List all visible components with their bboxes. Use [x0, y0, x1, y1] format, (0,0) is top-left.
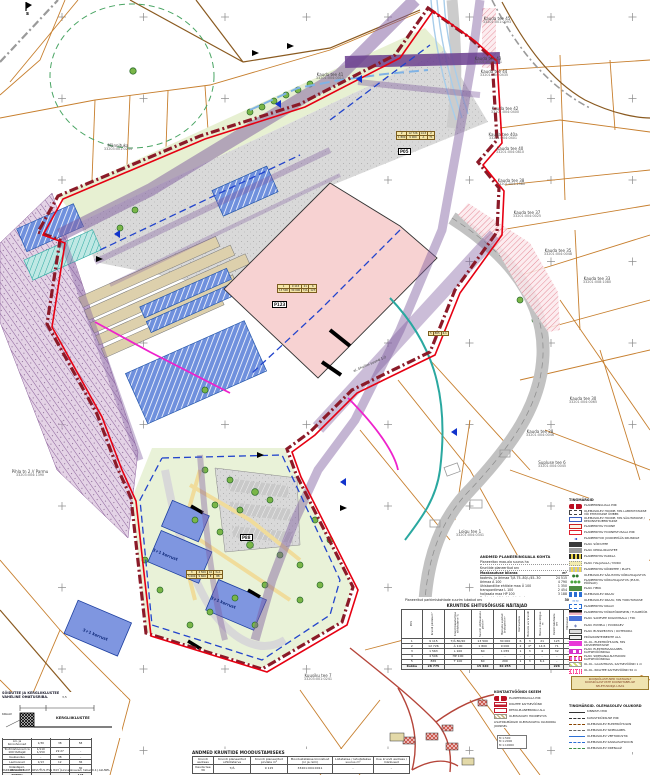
legend-item-label: OLEMASOLEV VEETORUSTIK: [587, 735, 628, 738]
column-header: Parkimiskohtade arv: [550, 610, 564, 639]
column-header-text: Krundi pindala m²: [432, 612, 435, 635]
column-header: Liidetakse / lahutatakse suurus m²: [333, 757, 373, 765]
building-right-mini-table: 19 11521613 50030 000T/Ä123: [277, 284, 317, 293]
legend-item: PLANEERITAV HOONE: [569, 524, 649, 529]
logo-icon: [569, 504, 582, 509]
newditch-icon: [569, 604, 582, 609]
data-table: POSKrundi pindala m²Krundi kasutamise si…: [401, 609, 573, 670]
legend-item-label: RIIGITEE KAITSEVÖÖND: [509, 703, 542, 706]
gaas-icon: [569, 662, 582, 667]
table-cell: Kauda tee 39: [193, 765, 214, 773]
legend-item-label: PLAN. HALJASALA / MURU: [584, 562, 621, 565]
column-header: Krundi planeeritud sihtotstarve: [213, 757, 251, 765]
legend-item-label: PLANEERITAV PARKLA: [584, 555, 615, 558]
legend-existing-item: OLEMASOLEV SIDEKAABEL: [569, 728, 649, 733]
plot-formation-panel: ANDMED KRUNTIDE MOODUSTAMISEKS Krundi aa…: [192, 749, 410, 774]
parcel-label: Kauda tee 3833201:004:1580: [497, 179, 525, 187]
north-arrow-icon: [26, 2, 32, 11]
detail-plan-drawing: Kauda tee 4533201:001:0093Kauda tee 4333…: [0, 0, 650, 775]
legend-item-label: PLANEERITAV MÜRATÕKKESEIN / TUGIMÜÜR: [584, 611, 647, 614]
tanhatch-icon: [494, 714, 507, 719]
mini-table-cell: 4 506: [197, 571, 207, 575]
column-header: Suurim ehitisealune pind m²: [472, 610, 494, 639]
section-left-label: KRAAV: [2, 712, 12, 716]
legend-item-label: OLEMASOLEV SÄILITATAV KÕRGHALJASTUS: [584, 574, 646, 577]
column-header-text: Korruselisus: [519, 616, 522, 632]
parcel-code: 33203:001:0244: [104, 148, 132, 152]
table-cell: 38: [50, 739, 70, 747]
legend-item-label: OLEMASOLEV KRAAV: [584, 593, 614, 596]
ditch-icon: [569, 592, 582, 597]
mini-table-cell: 71: [428, 136, 434, 140]
parking-calc-note: PARKIMISKOHTADE ARVUTUS EVS 843 (Linnatä…: [2, 768, 152, 772]
table-cell: 58: [70, 739, 92, 747]
line-sample-icon: [569, 724, 585, 725]
table-total-cell: 226: [550, 664, 564, 669]
mini-table-row: 58656,1: [429, 332, 449, 336]
legend-existing-item: KATASTRIÜKSUSE PIIR: [569, 716, 649, 721]
table-total-row: Kokku28 77515 42040 255226: [402, 664, 573, 669]
legend-item: PLAN. HEKK: [569, 586, 649, 591]
logo-icon: [494, 696, 507, 701]
parcel-code: 33201:004:1580: [497, 183, 525, 187]
glyph-icon: ◄: [569, 536, 582, 541]
legend-item-label: KATASTRIÜKSUSE PIIR: [587, 717, 619, 720]
legend-item: OL.OL. ELEKTRIÕHULIIN, MIS LIKVIDEERITAK…: [569, 641, 649, 647]
table-header-row: POSKrundi pindala m²Krundi kasutamise si…: [402, 610, 573, 639]
table-cell: 29 27: [50, 747, 70, 755]
mini-table-row: 5 6009 600E88: [187, 575, 223, 579]
legend-item-label: OLEMASOLEV HOONE, MIS LAMMUTATAKSE VÕI E…: [584, 510, 649, 516]
summary-row: Planeeritav maa-ala suurus ha3,2: [480, 560, 576, 565]
approvals-stamp: KOOSKÕLASTUSED VASTAVALTKOOSKÕLASTUSTE K…: [571, 676, 649, 690]
land-use-area: 3 188: [552, 592, 567, 596]
mini-table-cell: 9 000: [407, 136, 419, 140]
building-right-mini-table: 58656,1: [428, 331, 449, 336]
line-sample-icon: [569, 742, 585, 743]
section-label: KERGLIIKLUSTEE: [56, 716, 90, 720]
legend-item-label: PLAN. PUMPLA / PUURKAEV: [584, 624, 624, 627]
el-dash-icon: [569, 656, 582, 661]
table-cell: Äri- ja büroohooned: [3, 739, 32, 747]
column-header-text: Uue krundi aadress / märkused: [376, 757, 407, 764]
column-header-text: Moodustatakse kinnistust (nr ja nimi): [291, 757, 329, 764]
parcel-code: 33201:001:0093: [483, 21, 511, 25]
mini-legend-title: KONTAKTVÖÖNDI SKEEM: [494, 690, 568, 694]
legend-item: PLANEERINGUALA PIIR: [494, 696, 568, 701]
column-header: Krundi kasutamise sihtotstarve %: [445, 610, 472, 639]
legend-item: ◄PLANEERITUD JUURDEPÄÄS KRUNDILE: [569, 536, 649, 541]
table-total-cell: [535, 664, 550, 669]
parcel-code: 33203:001:0241: [304, 678, 332, 682]
parcel-code: 33201:004:0810: [496, 151, 524, 155]
column-header-text: Liidetakse / lahutatakse suurus m²: [335, 757, 371, 764]
rights-table-title: KRUNTIDE EHITUSÕIGUSE NÄITAJAD: [401, 603, 573, 608]
summary-title: ANDMED PLANEERINGUALA KOHTA: [480, 555, 576, 559]
mini-table-cell: 6,1: [441, 332, 448, 336]
legend-item-label: OLEMASOLEV KRAAV, MIS TORUTATAKSE: [584, 599, 643, 602]
table-header-row: Krundi aadressKrundi planeeritud sihtots…: [193, 757, 410, 765]
legend-item-label: OLEMASOLEV KANALISATSIOON: [587, 741, 633, 744]
summary-row-label: Kruntide planeeritud arv: [480, 566, 519, 570]
column-header-text: Hoonete arv krundil: [528, 611, 531, 637]
line-sample-icon: [569, 748, 585, 749]
line-sample-icon: [569, 736, 585, 737]
planning-area-summary: ANDMED PLANEERINGUALA KOHTA Planeeritav …: [480, 555, 576, 602]
mini-table-cell: Ä: [419, 136, 428, 140]
legend-item-label: DETAILPLANEERINGU ALA: [509, 709, 545, 712]
parcel-label: Kauda tee 40a33201:004:0401: [488, 133, 517, 141]
parcel-label: Kauda tee 3733201:004:0025: [513, 211, 541, 219]
legend-item-label: PLAN. BUSSIPEATUS / OOTEKODA: [584, 630, 632, 633]
table-row: Äri- ja büroohooned1/303858: [3, 739, 92, 747]
parcel-code: 33201:004:0025: [513, 215, 541, 219]
parcel-label: Pihla tn 2 // Parmu33203:004:1390: [12, 470, 49, 478]
column-header: Korruselisus: [516, 610, 525, 639]
legend-item-label: PLAN. ELEKTRIMAAKAABEL KAITSEVÖÖNDIGA: [584, 648, 649, 654]
bus-icon: [569, 629, 582, 634]
parcel-label: Kauda tee 4333201:001:0071: [474, 57, 502, 65]
legend-item: PLANEERITAV PARKLA: [569, 554, 649, 559]
section-dim-2: 3,5: [62, 695, 67, 699]
legend-item: OL.OL. RIIGITEE KAITSEVÖÖND 50 m: [569, 669, 649, 674]
legend-item-label: KINNISTU PIIR: [587, 710, 607, 713]
legend-item: OLEMASOLEV HOONESTUS: [494, 714, 568, 719]
mini-table-cell: 865: [433, 332, 441, 336]
mini-table-row: 34 506103+1: [187, 571, 223, 575]
table-total-cell: 15 420: [472, 664, 494, 669]
parcel-label: Kauda tee 3333201:008:1080: [583, 277, 611, 285]
column-header-text: Hoone max kõrgus m: [540, 611, 545, 637]
table-total-cell: Kokku: [402, 664, 423, 669]
asphalt-icon: [569, 542, 582, 547]
parcel-code: 33201:008:1080: [583, 281, 611, 285]
legend-item-label: PLAN. HEKK: [584, 587, 601, 590]
legend-item: ◈PLAN. PUMPLA / PUURKAEV: [569, 623, 649, 628]
bld-new-icon: [569, 524, 582, 529]
legend-item: PRÜGIKONTEINERITE ALA: [569, 635, 649, 640]
legend-item-label: PLANEERITAV KRAAV: [584, 605, 614, 608]
redbox-icon: [494, 708, 507, 713]
building-right-mini-table: 34 506103+15 6009 600E88: [186, 570, 223, 579]
legend-item: ●●●PLANEERITAV KÕRGHALJASTUS (PUUD, PÕÕS…: [569, 579, 649, 585]
legend-item: PLAN. SADEVEE KOGUMISALA / TIIK: [569, 616, 649, 621]
column-header: Hoonete arv krundil: [525, 610, 535, 639]
rights-note: Planeeritud parkimiskohtade suurim lubat…: [401, 598, 573, 602]
legend-item: PLAN. BUSSIPEATUS / OOTEKODA: [569, 629, 649, 634]
legend-item: PLAN. ELEKTRIMAAKAABEL KAITSEVÖÖNDIGA: [569, 648, 649, 654]
parcel-label: Kauda tee 3533201:004:0048: [544, 249, 572, 257]
parcel-label: Kauda tee 4033201:004:0810: [496, 147, 524, 155]
column-header-text: POS: [411, 621, 414, 626]
mini-legend-note: LISATINGMÄRGID OLEMASOLEVA OLUKORRA JOON…: [494, 720, 568, 728]
legend-existing-item: OLEMASOLEV DRENAAŽ: [569, 746, 649, 751]
legend-item: PLAN. KERGLIIKLUSTEE: [569, 548, 649, 553]
parcel-code: 33201:004:0011: [316, 77, 344, 81]
legend-item-label: PLAN. SIDEKANALISATSIOON KAITSEVÖÖNDIGA: [584, 655, 649, 661]
legend-item-label: PLANEERINGUALA PIIR: [509, 697, 541, 700]
legend-item-label: PRÜGIKONTEINERITE ALA: [584, 636, 621, 639]
building-right-mini-table: 212 72614,521 8009 000Ä71: [396, 131, 435, 140]
column-header-text: Krundi kasutamise sihtotstarve %: [455, 611, 460, 637]
mini-table-cell: 123: [309, 289, 317, 293]
scale-row: M 1:10000: [499, 744, 525, 748]
legend-item: ≈≈OLEMASOLEV KRAAV, MIS TORUTATAKSE: [569, 598, 649, 603]
striped-icon: [569, 567, 582, 572]
column-header-text: Krundi planeeritud sihtotstarve: [218, 757, 246, 764]
side-icon: [569, 649, 582, 654]
parcel-code: 33201:004:0401: [488, 137, 517, 141]
legend-item-label: OL.OL. RIIGITEE KAITSEVÖÖND 50 m: [584, 669, 637, 672]
column-header: Moodustatakse kinnistust (nr ja nimi): [287, 757, 333, 765]
water-icon: [569, 616, 582, 621]
table-total-cell: [525, 664, 535, 669]
legend-item: DETAILPLANEERINGU ALA: [494, 708, 568, 713]
legend-item: PLAN. HALJASALA / MURU: [569, 561, 649, 566]
parcel-label: Kuusiku tee 733203:001:0241: [304, 674, 332, 682]
hoonestus-icon: [569, 530, 582, 535]
line-sample-icon: [569, 718, 585, 719]
legend-item-label: PLAN. SÕIDUTEE: [584, 543, 608, 546]
bld-old-icon: [569, 510, 582, 515]
legend-main: TINGMÄRGID PLANEERINGUALA PIIROLEMASOLEV…: [569, 498, 649, 675]
haljas-icon: [569, 561, 582, 566]
table-total-cell: 28 775: [422, 664, 444, 669]
legend-item: OLEMASOLEV HOONE, MIS LAMMUTATAKSE VÕI E…: [569, 510, 649, 516]
mini-table-cell: 12 726: [407, 132, 419, 136]
legend-item-label: PLANEERITAV KÕNNITEE / PLATS: [584, 568, 631, 571]
legend-item-label: OLEMASOLEV DRENAAŽ: [587, 747, 622, 750]
column-header-text: Hoonete suletud brutopind m²: [502, 611, 507, 637]
parcel-label: Loigu tee 133201:004:0341: [456, 530, 484, 538]
legend-item-label: OL.OL. ELEKTRIÕHULIIN, MIS LIKVIDEERITAK…: [584, 641, 649, 647]
legend-item-label: PLANEERITAV KÕRGHALJASTUS (PUUD, PÕÕSAD): [584, 579, 649, 585]
column-header: Krundi pindala m²: [422, 610, 444, 639]
parcel-label: Kauda tee 2833201:004:0046: [526, 430, 554, 438]
redstripe-icon: [494, 702, 507, 707]
legend-existing-situation: TINGMÄRGID. OLEMASOLEV OLUKORD KINNISTU …: [569, 704, 649, 752]
legend-item: PLANEERITAV KÕNNITEE / PLATS: [569, 567, 649, 572]
tree-icon: [130, 68, 136, 74]
parcel-code: 33201:004:0341: [456, 534, 484, 538]
plot-position-label: P88: [240, 534, 253, 541]
table-total-cell: 40 255: [494, 664, 516, 669]
glyph-icon: ≈≈: [569, 598, 582, 603]
mini-table-cell: 30 000: [290, 289, 302, 293]
scale-box: M 1:500M 1:2000M 1:10000: [497, 735, 527, 749]
parcel-code: 33201:004:0065: [569, 401, 597, 405]
legend-item-label: OL.OL. GAASITRASS, KAITSEVÖÖND 1 m: [584, 663, 642, 666]
table-cell: 33201:004:0011: [287, 765, 333, 773]
parcel-code: 33201:004:0400: [491, 111, 519, 115]
legend-item-label: PLANEERITAV HOONE: [584, 525, 615, 528]
column-header: Krundi planeeritud pindala m²: [251, 757, 287, 765]
table-cell: T/Ä: [213, 765, 251, 773]
legend-item: PLAN. SÕIDUTEE: [569, 542, 649, 547]
column-header-text: Suurim ehitisealune pind m²: [480, 611, 485, 637]
parcel-label: Kauda tee 4133201:004:0011: [316, 73, 344, 81]
el-icon: [569, 641, 582, 646]
mini-table-cell: T/Ä: [302, 289, 309, 293]
legend-item: ●●OLEMASOLEV SÄILITATAV KÕRGHALJASTUS: [569, 573, 649, 578]
legend-item: PLANEERINGUALA PIIR: [569, 504, 649, 509]
glyph-icon: ●●: [569, 573, 582, 578]
parcel-label: Supluse tee 633201:004:0045: [538, 461, 566, 469]
table-row: Tootmishooned ca 100 töötajat1/110 1/150…: [3, 747, 92, 755]
column-header: Uue krundi aadress / märkused: [373, 757, 409, 765]
legend-item-label: PLANEERINGUALA PIIR: [584, 504, 617, 507]
legend-item: RIIGITEE KAITSEVÖÖND: [494, 702, 568, 707]
column-header: Hoonete suletud brutopind m²: [494, 610, 516, 639]
legend-item: OLEMASOLEV KRAAV: [569, 592, 649, 597]
parcel-label: Kauda tee 4533201:001:0093: [483, 17, 511, 25]
column-header-text: Krundi aadress: [197, 757, 209, 764]
table-row: Kauda tee 39T/Ä9 11533201:004:0011––: [193, 765, 410, 773]
existing-road-axis: [0, 0, 58, 62]
legend-item: PLANEERITAV HOONESTUSALA PIIR: [569, 530, 649, 535]
table-cell: –: [70, 747, 92, 755]
legend-item: PLAN. SIDEKANALISATSIOON KAITSEVÖÖNDIGA: [569, 655, 649, 661]
legend-existing-item: OLEMASOLEV VEETORUSTIK: [569, 734, 649, 739]
legend-existing-title: TINGMÄRGID. OLEMASOLEV OLUKORD: [569, 704, 649, 708]
mini-table-cell: 88: [214, 575, 222, 579]
legend-item-label: PLANEERITUD JUURDEPÄÄS KRUNDILE: [584, 537, 639, 540]
column-header-text: Parkimiskohtade arv: [554, 611, 559, 637]
plot-position-label: P123: [272, 301, 287, 308]
legend-title: TINGMÄRGID: [569, 498, 649, 502]
summary-row: Kruntide planeeritud arv5: [480, 566, 576, 571]
table-cell: 1/30: [31, 739, 50, 747]
parcel-code: 33201:004:0048: [544, 253, 572, 257]
plot-position-label: P05: [398, 148, 411, 155]
bld-keep-icon: [569, 517, 582, 522]
legend-item-label: OLEMASOLEV SIDEKAABEL: [587, 729, 626, 732]
kergtee-icon: [569, 548, 582, 553]
parcel-code: 33201:001:0071: [474, 61, 502, 65]
parcel-code: 33201:004:0045: [538, 465, 566, 469]
table-cell: 9 115: [251, 765, 287, 773]
waste-icon: [569, 635, 582, 640]
building-rights-panel: Planeeritud parkimiskohtade suurim lubat…: [401, 597, 573, 670]
table-cell: –: [333, 765, 373, 773]
legend-existing-item: OLEMASOLEV ELEKTRIÕHULIIN: [569, 722, 649, 727]
mini-table-cell: 5 600: [187, 575, 197, 579]
legend-item: OLEMASOLEV HOONE, MIS SÄILITATAKSE / REK…: [569, 517, 649, 523]
legend-item-label: PLANEERITAV HOONESTUSALA PIIR: [584, 531, 635, 534]
mini-table-cell: 3+1: [214, 571, 222, 575]
glyph-icon: ●●●: [569, 579, 582, 584]
parcel-label: Kauda tee 4433201:004:0435: [480, 70, 508, 78]
stamp-line: SELETUSKIRJA LISAS: [573, 685, 647, 688]
hedge-icon: [569, 586, 582, 591]
summary-row-label: Planeeritav maa-ala suurus ha: [480, 560, 529, 564]
noise-icon: [569, 610, 582, 615]
legend-item-label: OLEMASOLEV HOONE, MIS SÄILITATAKSE / REK…: [584, 517, 649, 523]
parkla-icon: [569, 554, 582, 559]
green-zone-circle: [50, 4, 214, 148]
parcel-label: Kauda tee 3033201:004:0065: [569, 397, 597, 405]
mini-table-cell: 1 800: [397, 136, 407, 140]
teekv-icon: [569, 669, 582, 674]
legend-context-scheme: KONTAKTVÖÖNDI SKEEM PLANEERINGUALA PIIRR…: [494, 690, 568, 728]
parcel-label: Kauda tee 4233201:004:0400: [491, 107, 519, 115]
table-total-cell: [445, 664, 472, 669]
legend-item-label: PLAN. KERGLIIKLUSTEE: [584, 549, 617, 552]
formation-table-title: ANDMED KRUNTIDE MOODUSTAMISEKS: [192, 750, 410, 755]
mini-table-cell: 9 600: [197, 575, 207, 579]
section-dim-1: 2,5: [26, 695, 31, 699]
table-total-cell: [516, 664, 525, 669]
legend-item: PLANEERITAV KRAAV: [569, 604, 649, 609]
parcel-code: 33203:004:1390: [12, 474, 49, 478]
line-sample-icon: [569, 730, 585, 731]
parcel-label: Männituka33203:001:0244: [104, 144, 132, 152]
data-table: Krundi aadressKrundi planeeritud sihtots…: [192, 756, 410, 774]
column-header: Krundi aadress: [193, 757, 214, 765]
parcel-code: 33201:004:0046: [526, 434, 554, 438]
table-cell: 1/110 1/150: [31, 747, 50, 755]
legend-item-label: OLEMASOLEV HOONESTUS: [509, 715, 547, 718]
legend-item-label: OLEMASOLEV ELEKTRIÕHULIIN: [587, 723, 631, 726]
legend-item: OL.OL. GAASITRASS, KAITSEVÖÖND 1 m: [569, 662, 649, 667]
legend-existing-item: KINNISTU PIIR: [569, 710, 649, 715]
table-cell: –: [373, 765, 409, 773]
table-cell: Tootmishooned ca 100 töötajat: [3, 747, 32, 755]
column-header-text: Krundi planeeritud pindala m²: [255, 757, 283, 764]
legend-existing-item: OLEMASOLEV KANALISATSIOON: [569, 740, 649, 745]
mini-table-cell: 13 500: [278, 289, 290, 293]
column-header: Hoone max kõrgus m: [535, 610, 550, 639]
legend-item: PLANEERITAV MÜRATÕKKESEIN / TUGIMÜÜR: [569, 610, 649, 615]
parcel-code: 33201:004:0435: [480, 74, 508, 78]
line-sample-icon: [569, 712, 585, 713]
column-header: POS: [402, 610, 423, 639]
north-arrow-letter: s: [26, 11, 29, 17]
legend-item-label: PLAN. SADEVEE KOGUMISALA / TIIK: [584, 617, 635, 620]
mini-table-row: 1 8009 000Ä71: [397, 136, 435, 140]
glyph-icon: ◈: [569, 623, 582, 628]
mini-table-row: 13 50030 000T/Ä123: [278, 289, 317, 293]
